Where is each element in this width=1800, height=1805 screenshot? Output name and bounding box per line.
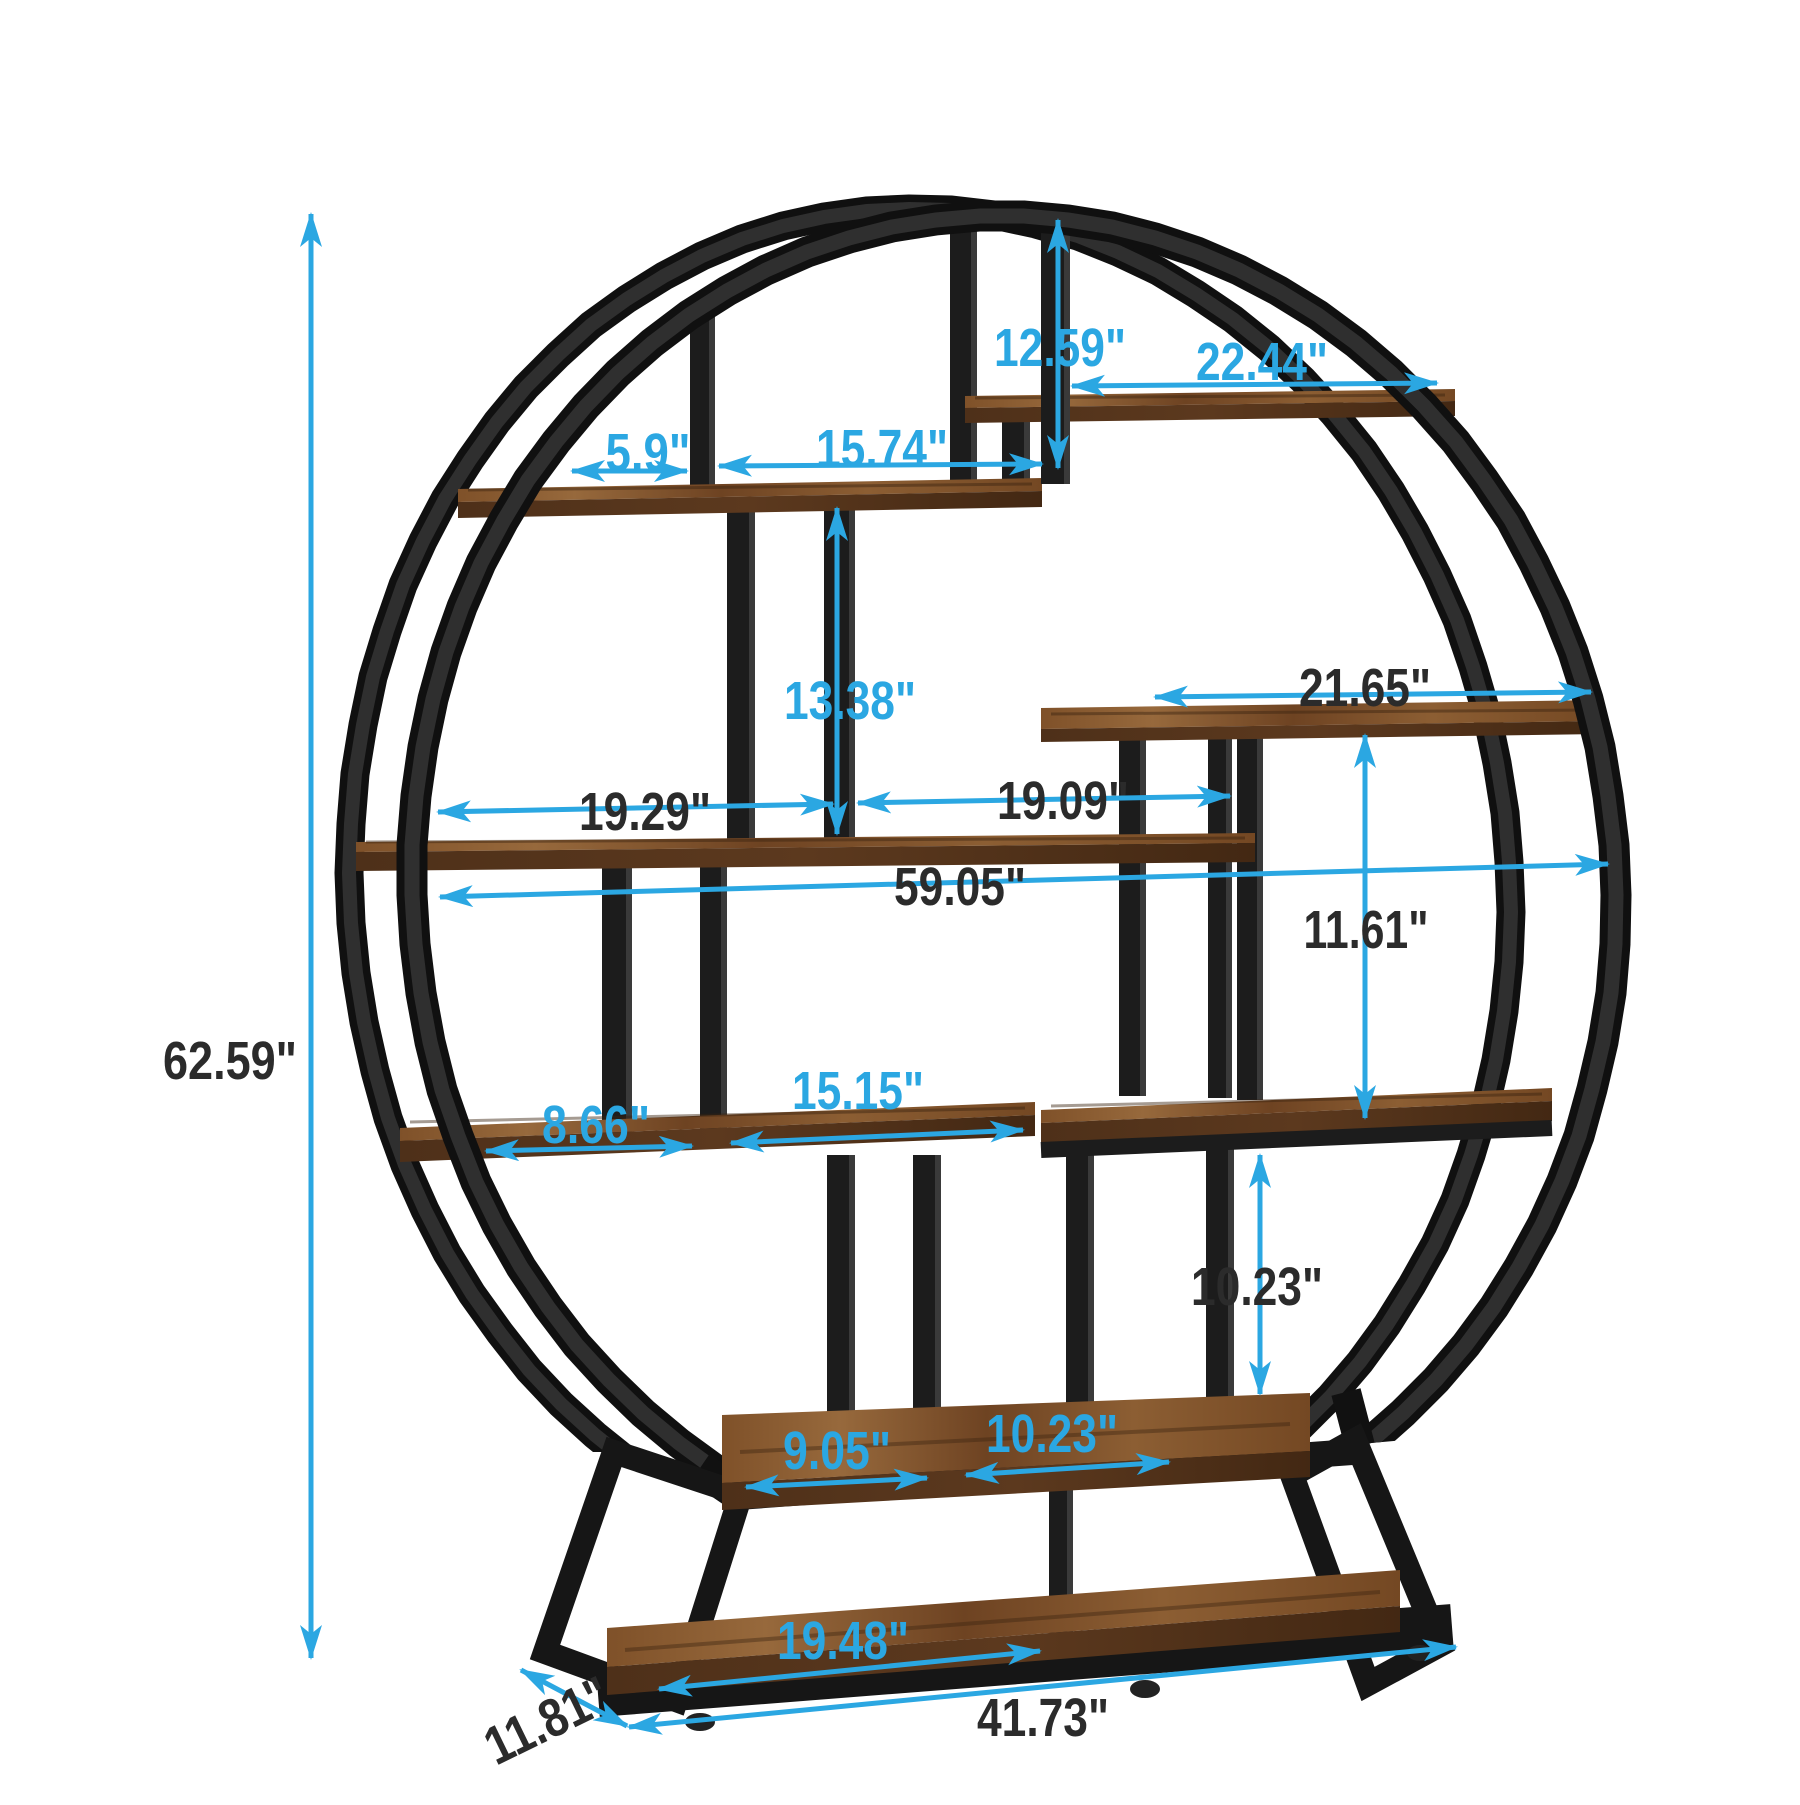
- svg-text:5.9": 5.9": [606, 423, 691, 483]
- svg-text:11.61": 11.61": [1304, 900, 1429, 960]
- svg-text:22.44": 22.44": [1196, 332, 1328, 392]
- svg-text:19.29": 19.29": [579, 782, 711, 842]
- svg-text:10.23": 10.23": [986, 1404, 1118, 1464]
- svg-text:15.15": 15.15": [792, 1061, 924, 1121]
- svg-text:62.59": 62.59": [163, 1031, 297, 1091]
- svg-text:15.74": 15.74": [816, 419, 948, 479]
- svg-text:19.09": 19.09": [997, 771, 1129, 831]
- svg-text:10.23": 10.23": [1191, 1257, 1323, 1317]
- svg-text:8.66": 8.66": [542, 1095, 650, 1155]
- svg-text:21.65": 21.65": [1299, 658, 1431, 718]
- svg-text:59.05": 59.05": [894, 857, 1026, 917]
- svg-text:12.59": 12.59": [994, 318, 1126, 378]
- svg-text:9.05": 9.05": [783, 1421, 891, 1481]
- svg-text:19.48": 19.48": [777, 1611, 909, 1671]
- svg-text:41.73": 41.73": [977, 1688, 1109, 1748]
- svg-text:13.38": 13.38": [784, 671, 916, 731]
